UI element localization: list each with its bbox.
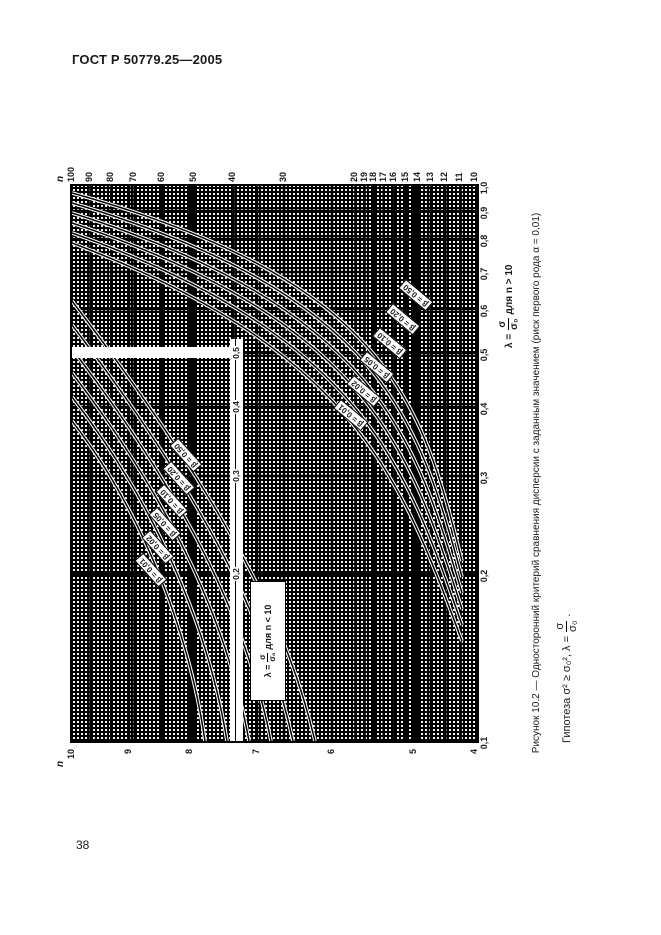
left-n-tick: 8	[184, 749, 194, 769]
right-n-tick: 13	[425, 172, 435, 182]
lambda-tick: 1,0	[479, 182, 489, 195]
hypothesis-line: Гипотеза σ² ≥ σ₀², λ = σ σ₀ .	[555, 614, 579, 743]
hypothesis-period: .	[561, 614, 573, 617]
right-n-tick: 70	[128, 172, 138, 182]
right-n-tick: 100	[66, 167, 76, 182]
lambda-eq: λ =	[504, 334, 515, 348]
left-n-tick: 10	[66, 749, 76, 769]
right-n-tick: 16	[388, 172, 398, 182]
lambda-condition: для n < 10	[263, 605, 273, 650]
left-n-tick: 5	[408, 749, 418, 769]
lambda-tick: 0,1	[479, 737, 489, 750]
internal-lambda-tick: 0,4	[231, 400, 241, 414]
lambda-tick: 0,8	[479, 235, 489, 248]
lambda-tick: 0,7	[479, 268, 489, 281]
internal-lambda-tick: 0,2	[231, 567, 241, 581]
right-n-tick: 80	[105, 172, 115, 182]
lambda-axis-title-n-lt-10: λ = σ σ₀ для n < 10	[250, 581, 286, 701]
lambda-tick: 0,3	[479, 472, 489, 485]
lambda-axis-title-n-gt-10: λ = σ σ₀ для n > 10	[498, 265, 520, 349]
right-n-tick: 10	[469, 172, 479, 182]
right-n-tick: 40	[227, 172, 237, 182]
document-page: { "page": { "header": "ГОСТ Р 50779.25—2…	[0, 0, 661, 935]
lambda-tick: 0,6	[479, 305, 489, 318]
right-n-axis-title: n	[55, 176, 66, 182]
left-n-tick: 9	[123, 749, 133, 769]
right-n-tick: 15	[400, 172, 410, 182]
internal-lambda-tick: 0,5	[231, 346, 241, 360]
left-n-tick: 4	[469, 749, 479, 769]
lambda-tick: 0,9	[479, 207, 489, 220]
hypothesis-text: Гипотеза σ² ≥ σ₀², λ =	[561, 636, 573, 743]
right-n-tick: 20	[349, 172, 359, 182]
plot-grid: 0,2 0,3 0,4 0,5 λ = σ σ₀ для n < 10 β = …	[70, 184, 479, 743]
right-n-tick: 14	[412, 172, 422, 182]
sigma-fraction: σ σ₀	[498, 318, 520, 329]
right-n-tick: 30	[278, 172, 288, 182]
right-n-tick: 18	[368, 172, 378, 182]
sigma-fraction: σ σ₀	[555, 621, 579, 632]
right-n-tick: 90	[84, 172, 94, 182]
lambda-05-white-gap	[72, 347, 243, 358]
page-number: 38	[76, 838, 89, 852]
left-n-tick: 7	[251, 749, 261, 769]
right-n-tick: 17	[378, 172, 388, 182]
lambda-tick: 0,2	[479, 570, 489, 583]
internal-lambda-tick: 0,3	[231, 469, 241, 483]
left-n-axis-title: n	[55, 761, 66, 767]
right-n-tick: 12	[439, 172, 449, 182]
figure-10-2-rotated: n n 10 9 8 7 6 5 4 100 90 80 70 60 50 40…	[55, 163, 600, 808]
right-n-tick: 60	[156, 172, 166, 182]
internal-lambda-axis: 0,2 0,3 0,4 0,5	[230, 339, 243, 741]
sigma-fraction: σ σ₀	[259, 653, 277, 662]
left-n-tick: 6	[326, 749, 336, 769]
figure-caption: Рисунок 10.2 — Односторонний критерий ср…	[531, 163, 542, 803]
gost-header: ГОСТ Р 50779.25—2005	[72, 52, 222, 67]
lambda-tick: 0,4	[479, 403, 489, 416]
lambda-condition: для n > 10	[504, 265, 515, 315]
lambda-eq: λ =	[263, 665, 273, 678]
figure-10-2: n n 10 9 8 7 6 5 4 100 90 80 70 60 50 40…	[55, 163, 600, 803]
right-n-tick: 11	[454, 172, 464, 182]
lambda-tick: 0,5	[479, 349, 489, 362]
right-n-tick: 50	[188, 172, 198, 182]
